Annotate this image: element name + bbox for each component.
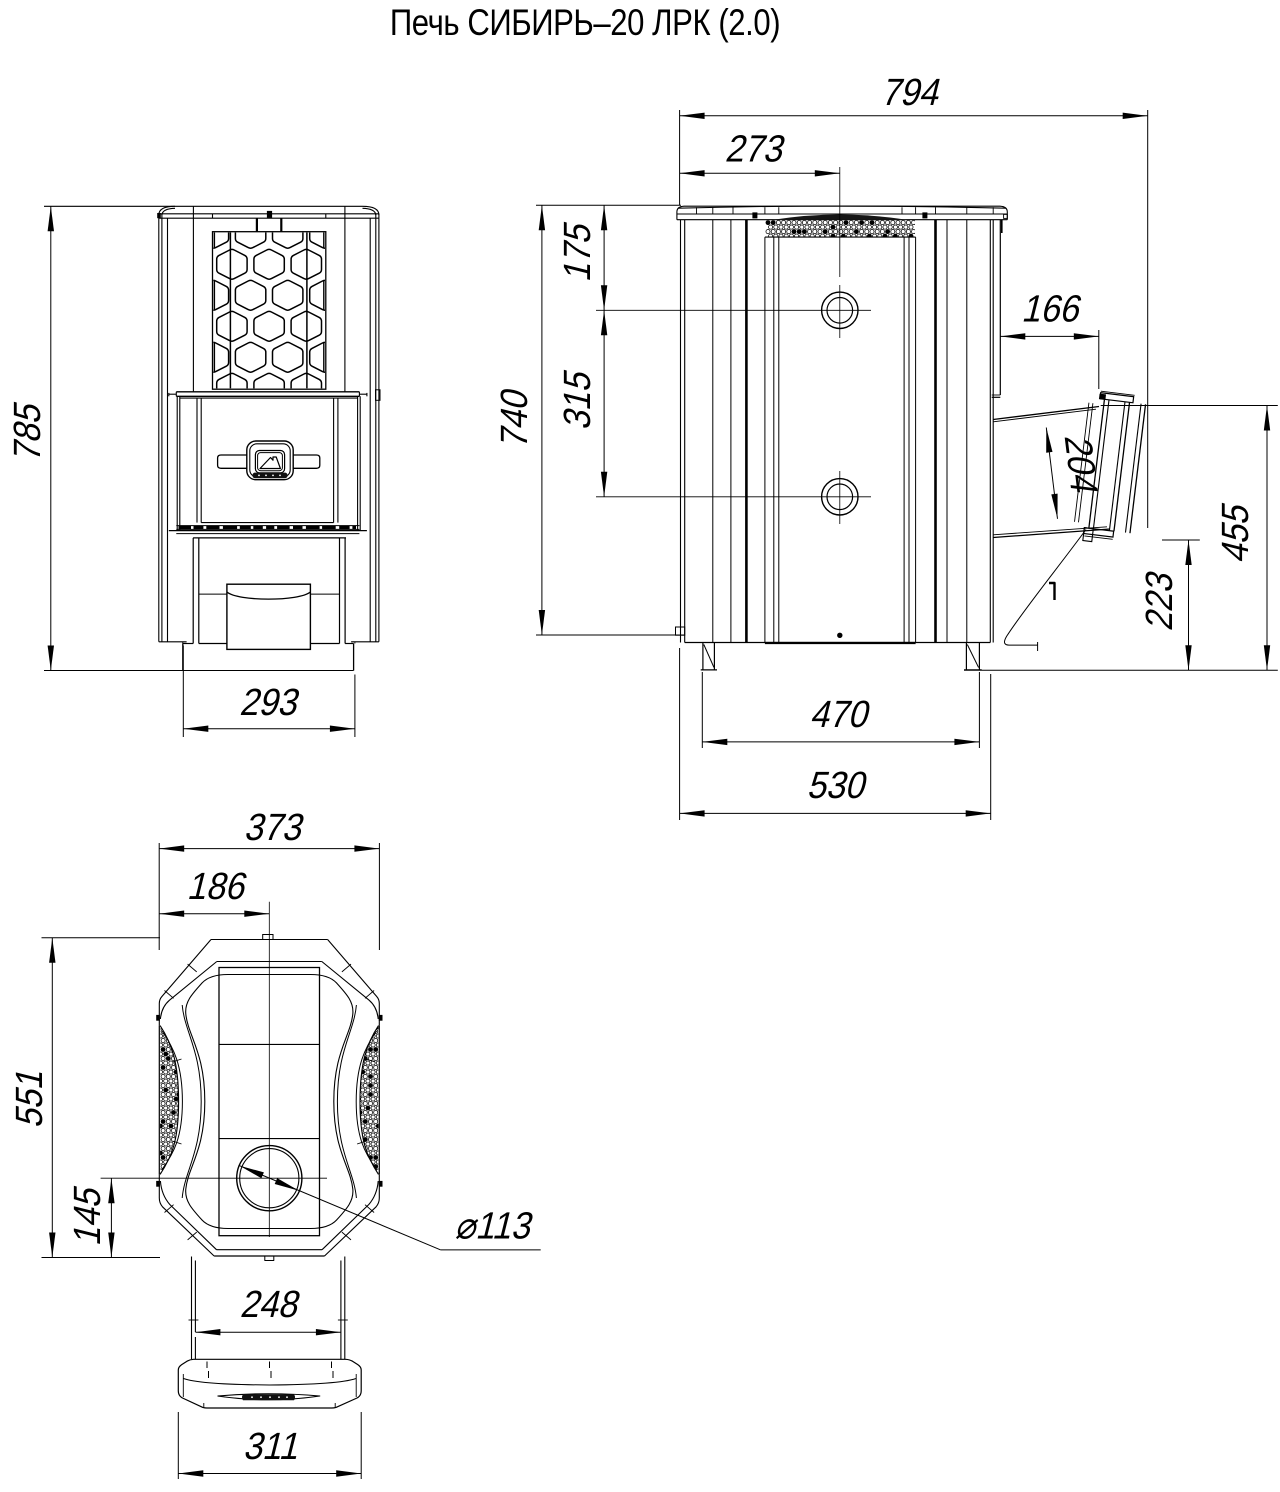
svg-text:551: 551 bbox=[8, 1063, 50, 1131]
svg-text:145: 145 bbox=[66, 1181, 108, 1249]
svg-text:223: 223 bbox=[1138, 566, 1180, 634]
svg-text:186: 186 bbox=[184, 865, 252, 907]
svg-text:293: 293 bbox=[237, 681, 305, 723]
svg-text:175: 175 bbox=[556, 217, 598, 285]
svg-text:204: 204 bbox=[1056, 435, 1106, 497]
svg-text:⌀113: ⌀113 bbox=[452, 1204, 538, 1246]
svg-text:166: 166 bbox=[1019, 287, 1087, 329]
svg-text:740: 740 bbox=[493, 383, 535, 451]
svg-text:794: 794 bbox=[878, 71, 946, 113]
svg-text:373: 373 bbox=[241, 806, 309, 848]
svg-text:455: 455 bbox=[1214, 498, 1256, 566]
svg-text:Печь СИБИРЬ–20 ЛРК (2.0): Печь СИБИРЬ–20 ЛРК (2.0) bbox=[390, 3, 780, 44]
svg-text:273: 273 bbox=[722, 127, 790, 169]
svg-text:470: 470 bbox=[807, 693, 875, 735]
svg-text:785: 785 bbox=[6, 397, 48, 465]
svg-text:315: 315 bbox=[556, 365, 598, 433]
svg-text:311: 311 bbox=[241, 1425, 306, 1467]
svg-text:248: 248 bbox=[237, 1283, 305, 1325]
svg-text:530: 530 bbox=[804, 764, 872, 806]
